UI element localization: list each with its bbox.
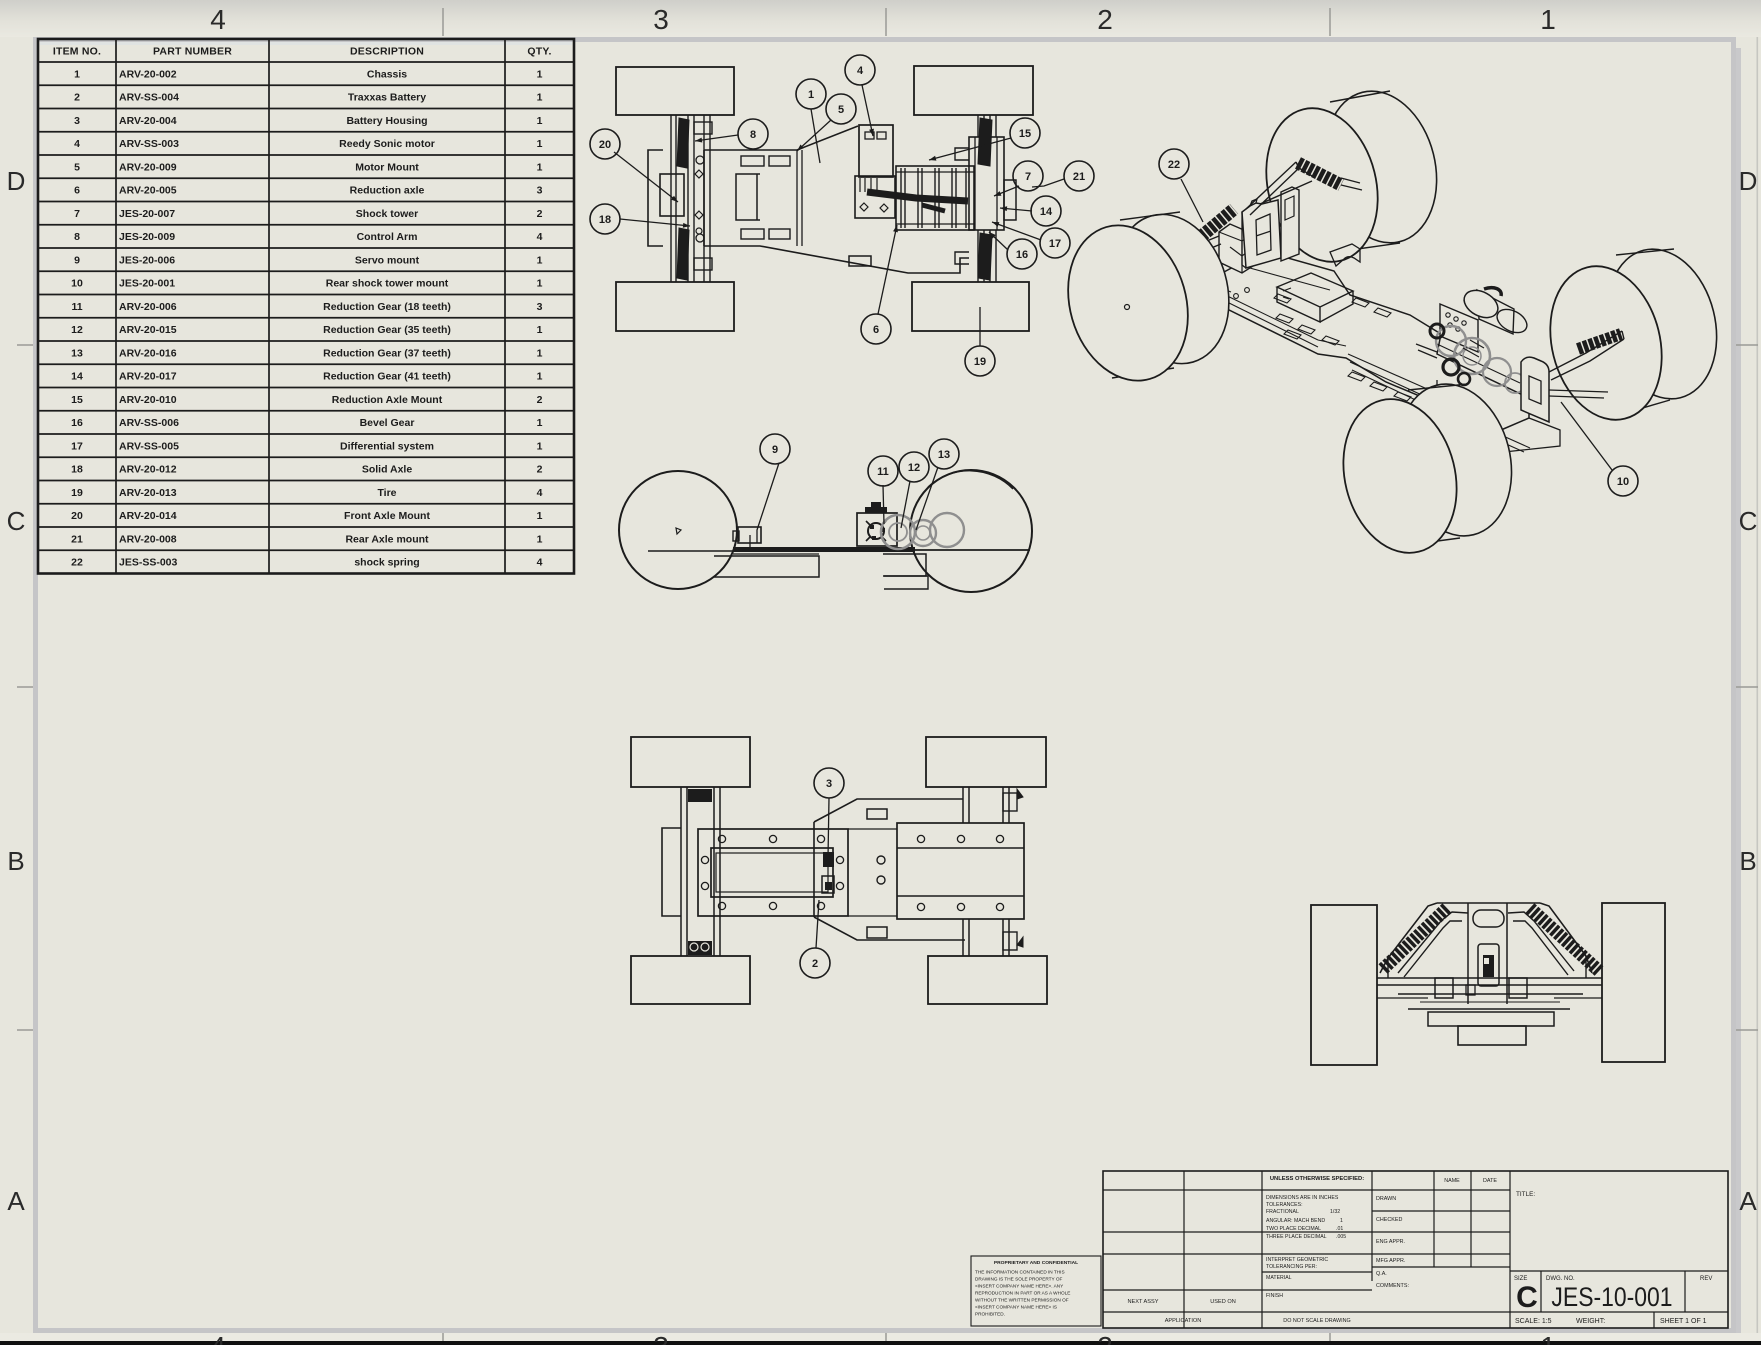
svg-text:3: 3 xyxy=(653,4,669,35)
svg-text:5: 5 xyxy=(74,161,80,173)
svg-text:CHECKED: CHECKED xyxy=(1376,1217,1402,1223)
svg-text:2: 2 xyxy=(1097,1331,1113,1345)
svg-text:DATE: DATE xyxy=(1483,1178,1497,1184)
svg-text:SCALE: 1:5: SCALE: 1:5 xyxy=(1515,1318,1552,1325)
svg-text:ARV-20-005: ARV-20-005 xyxy=(119,185,177,197)
svg-text:THREE PLACE DECIMAL: THREE PLACE DECIMAL xyxy=(1266,1234,1327,1240)
svg-text:ARV-SS-005: ARV-SS-005 xyxy=(119,440,179,452)
svg-text:1: 1 xyxy=(537,254,543,266)
svg-text:1: 1 xyxy=(808,89,814,101)
svg-text:9: 9 xyxy=(772,444,778,456)
svg-text:Chassis: Chassis xyxy=(367,68,407,80)
svg-text:ARV-20-008: ARV-20-008 xyxy=(119,533,177,545)
svg-text:B: B xyxy=(1739,846,1756,876)
svg-text:12: 12 xyxy=(71,324,83,336)
svg-text:Reduction Gear (41 teeth): Reduction Gear (41 teeth) xyxy=(323,371,451,383)
svg-text:19: 19 xyxy=(71,487,83,499)
svg-text:TOLERANCES:: TOLERANCES: xyxy=(1266,1202,1303,1208)
svg-text:PART NUMBER: PART NUMBER xyxy=(153,45,232,57)
svg-text:1: 1 xyxy=(537,347,543,359)
svg-text:5: 5 xyxy=(838,104,844,116)
svg-text:DIMENSIONS ARE IN INCHES: DIMENSIONS ARE IN INCHES xyxy=(1266,1195,1339,1201)
svg-text:3: 3 xyxy=(74,115,80,127)
svg-text:TITLE:: TITLE: xyxy=(1516,1191,1535,1198)
svg-text:A: A xyxy=(1739,1186,1757,1216)
svg-text:REV: REV xyxy=(1700,1276,1712,1282)
svg-text:APPLICATION: APPLICATION xyxy=(1165,1318,1202,1324)
svg-text:11: 11 xyxy=(71,301,82,313)
svg-text:SHEET 1 OF 1: SHEET 1 OF 1 xyxy=(1660,1318,1707,1325)
svg-text:6: 6 xyxy=(74,185,80,197)
svg-text:1: 1 xyxy=(537,417,543,429)
svg-text:7: 7 xyxy=(1025,171,1031,183)
svg-text:4: 4 xyxy=(537,231,543,243)
svg-text:1: 1 xyxy=(537,324,543,336)
svg-text:ARV-20-004: ARV-20-004 xyxy=(119,115,177,127)
svg-text:WEIGHT:: WEIGHT: xyxy=(1576,1318,1605,1325)
svg-text:Servo mount: Servo mount xyxy=(355,254,420,266)
svg-text:4: 4 xyxy=(210,1331,226,1345)
svg-text:1: 1 xyxy=(537,533,543,545)
svg-text:1: 1 xyxy=(537,68,543,80)
svg-text:C: C xyxy=(7,506,26,536)
svg-text:2: 2 xyxy=(812,958,818,970)
svg-text:.01: .01 xyxy=(1336,1226,1343,1232)
svg-text:ARV-SS-004: ARV-SS-004 xyxy=(119,92,179,104)
svg-text:NAME: NAME xyxy=(1444,1178,1460,1184)
svg-text:4: 4 xyxy=(210,4,226,35)
svg-text:Battery Housing: Battery Housing xyxy=(346,115,427,127)
svg-text:JES-10-001: JES-10-001 xyxy=(1551,1282,1672,1312)
svg-text:DRAWING IS THE SOLE PROPERTY O: DRAWING IS THE SOLE PROPERTY OF xyxy=(975,1277,1062,1282)
svg-text:ENG APPR.: ENG APPR. xyxy=(1376,1239,1405,1245)
svg-text:2: 2 xyxy=(1097,4,1113,35)
svg-text:13: 13 xyxy=(938,449,950,461)
svg-text:Bevel Gear: Bevel Gear xyxy=(360,417,415,429)
svg-text:17: 17 xyxy=(1049,238,1061,250)
svg-text:ARV-20-013: ARV-20-013 xyxy=(119,487,177,499)
svg-text:4: 4 xyxy=(537,557,543,569)
svg-text:Reduction Axle Mount: Reduction Axle Mount xyxy=(332,394,443,406)
svg-text:10: 10 xyxy=(1617,476,1629,488)
svg-text:ARV-20-012: ARV-20-012 xyxy=(119,464,177,476)
svg-text:DO NOT SCALE DRAWING: DO NOT SCALE DRAWING xyxy=(1283,1318,1350,1324)
svg-text:22: 22 xyxy=(1168,159,1180,171)
svg-text:<INSERT COMPANY NAME HERE>. A: <INSERT COMPANY NAME HERE>. ANY xyxy=(975,1284,1064,1289)
svg-text:Reduction Gear (37 teeth): Reduction Gear (37 teeth) xyxy=(323,347,451,359)
svg-text:1: 1 xyxy=(1540,1331,1556,1345)
svg-text:Rear shock tower mount: Rear shock tower mount xyxy=(326,278,449,290)
svg-text:Reduction Gear (18 teeth): Reduction Gear (18 teeth) xyxy=(323,301,451,313)
svg-text:Traxxas Battery: Traxxas Battery xyxy=(348,92,426,104)
svg-text:2: 2 xyxy=(537,208,543,220)
svg-text:6: 6 xyxy=(873,324,879,336)
svg-text:JES-20-006: JES-20-006 xyxy=(119,254,175,266)
svg-text:Tire: Tire xyxy=(377,487,396,499)
svg-text:21: 21 xyxy=(71,533,83,545)
svg-text:ITEM NO.: ITEM NO. xyxy=(53,45,101,57)
svg-text:19: 19 xyxy=(974,356,986,368)
svg-text:ARV-20-009: ARV-20-009 xyxy=(119,161,177,173)
svg-text:shock spring: shock spring xyxy=(354,557,419,569)
svg-text:NEXT ASSY: NEXT ASSY xyxy=(1128,1299,1159,1305)
svg-text:Q.A.: Q.A. xyxy=(1376,1271,1387,1277)
svg-text:FRACTIONAL: FRACTIONAL xyxy=(1266,1209,1299,1215)
svg-text:UNLESS OTHERWISE SPECIFIED:: UNLESS OTHERWISE SPECIFIED: xyxy=(1270,1176,1364,1182)
svg-text:8: 8 xyxy=(750,129,756,141)
svg-text:FINISH: FINISH xyxy=(1266,1293,1283,1299)
svg-text:INTERPRET GEOMETRIC: INTERPRET GEOMETRIC xyxy=(1266,1257,1328,1263)
svg-text:ANGULAR: MACH BEND: ANGULAR: MACH BEND xyxy=(1266,1218,1325,1224)
svg-text:3: 3 xyxy=(653,1331,669,1345)
svg-text:MFG APPR.: MFG APPR. xyxy=(1376,1258,1405,1264)
svg-text:ARV-20-015: ARV-20-015 xyxy=(119,324,177,336)
svg-text:Differential system: Differential system xyxy=(340,440,434,452)
svg-text:Motor Mount: Motor Mount xyxy=(355,161,419,173)
svg-text:PROPRIETARY AND CONFIDENTIAL: PROPRIETARY AND CONFIDENTIAL xyxy=(994,1260,1078,1266)
svg-text:ARV-20-014: ARV-20-014 xyxy=(119,510,177,522)
svg-text:15: 15 xyxy=(71,394,83,406)
svg-text:DESCRIPTION: DESCRIPTION xyxy=(350,45,424,57)
svg-text:ARV-SS-003: ARV-SS-003 xyxy=(119,138,179,150)
svg-text:1: 1 xyxy=(74,68,80,80)
svg-text:15: 15 xyxy=(1019,128,1031,140)
svg-text:17: 17 xyxy=(71,440,83,452)
svg-text:1: 1 xyxy=(537,510,543,522)
svg-text:1: 1 xyxy=(537,138,543,150)
svg-text:1: 1 xyxy=(537,161,543,173)
svg-text:Rear Axle mount: Rear Axle mount xyxy=(345,533,429,545)
svg-text:13: 13 xyxy=(71,347,83,359)
svg-text:ARV-20-006: ARV-20-006 xyxy=(119,301,177,313)
svg-text:JES-20-007: JES-20-007 xyxy=(119,208,175,220)
svg-text:18: 18 xyxy=(599,214,611,226)
svg-text:11: 11 xyxy=(877,466,889,478)
svg-text:ARV-SS-006: ARV-SS-006 xyxy=(119,417,179,429)
svg-text:Reduction axle: Reduction axle xyxy=(350,185,425,197)
svg-text:ARV-20-017: ARV-20-017 xyxy=(119,371,177,383)
svg-text:14: 14 xyxy=(1040,206,1053,218)
svg-text:TWO PLACE DECIMAL: TWO PLACE DECIMAL xyxy=(1266,1226,1321,1232)
svg-text:JES-20-009: JES-20-009 xyxy=(119,231,175,243)
svg-text:1/32: 1/32 xyxy=(1330,1209,1340,1215)
svg-text:1: 1 xyxy=(1540,4,1556,35)
svg-text:18: 18 xyxy=(71,464,83,476)
svg-text:1: 1 xyxy=(537,92,543,104)
svg-text:3: 3 xyxy=(537,185,543,197)
svg-text:14: 14 xyxy=(71,371,83,383)
svg-text:DRAWN: DRAWN xyxy=(1376,1196,1396,1202)
svg-text:PROHIBITED.: PROHIBITED. xyxy=(975,1312,1005,1317)
svg-text:USED ON: USED ON xyxy=(1210,1299,1236,1305)
svg-text:21: 21 xyxy=(1073,171,1085,183)
svg-text:2: 2 xyxy=(74,92,80,104)
svg-text:Shock tower: Shock tower xyxy=(356,208,418,220)
svg-text:2: 2 xyxy=(537,394,543,406)
svg-text:<INSERT COMPANY NAME HERE> IS: <INSERT COMPANY NAME HERE> IS xyxy=(975,1305,1057,1310)
svg-text:A: A xyxy=(7,1186,25,1216)
svg-text:16: 16 xyxy=(71,417,83,429)
svg-text:QTY.: QTY. xyxy=(527,45,551,57)
svg-text:ARV-20-010: ARV-20-010 xyxy=(119,394,177,406)
svg-text:7: 7 xyxy=(74,208,80,220)
svg-text:1: 1 xyxy=(537,115,543,127)
svg-text:ARV-20-016: ARV-20-016 xyxy=(119,347,177,359)
svg-text:4: 4 xyxy=(857,65,864,77)
svg-text:16: 16 xyxy=(1016,249,1028,261)
svg-text:Solid Axle: Solid Axle xyxy=(362,464,413,476)
svg-text:3: 3 xyxy=(826,778,832,790)
svg-text:4: 4 xyxy=(74,138,80,150)
svg-text:10: 10 xyxy=(71,278,83,290)
svg-text:4: 4 xyxy=(537,487,543,499)
svg-text:2: 2 xyxy=(537,464,543,476)
svg-text:TOLERANCING PER:: TOLERANCING PER: xyxy=(1266,1264,1317,1270)
svg-text:THE INFORMATION CONTAINED IN T: THE INFORMATION CONTAINED IN THIS xyxy=(975,1270,1065,1275)
svg-text:8: 8 xyxy=(74,231,80,243)
svg-text:12: 12 xyxy=(908,462,920,474)
svg-text:C: C xyxy=(1516,1281,1538,1314)
svg-text:Reduction Gear (35 teeth): Reduction Gear (35 teeth) xyxy=(323,324,451,336)
svg-text:DWG. NO.: DWG. NO. xyxy=(1546,1276,1575,1282)
svg-text:B: B xyxy=(7,846,24,876)
svg-text:Reedy Sonic motor: Reedy Sonic motor xyxy=(339,138,435,150)
svg-text:9: 9 xyxy=(74,254,80,266)
svg-text:COMMENTS:: COMMENTS: xyxy=(1376,1283,1409,1289)
svg-text:ARV-20-002: ARV-20-002 xyxy=(119,68,177,80)
svg-text:.005: .005 xyxy=(1336,1234,1346,1240)
svg-text:JES-SS-003: JES-SS-003 xyxy=(119,557,178,569)
svg-text:D: D xyxy=(7,166,26,196)
svg-text:Control Arm: Control Arm xyxy=(357,231,418,243)
svg-text:MATERIAL: MATERIAL xyxy=(1266,1275,1292,1281)
svg-text:1: 1 xyxy=(537,278,543,290)
svg-text:3: 3 xyxy=(537,301,543,313)
svg-text:1: 1 xyxy=(537,371,543,383)
svg-text:D: D xyxy=(1739,166,1758,196)
svg-text:REPRODUCTION IN PART OR AS A W: REPRODUCTION IN PART OR AS A WHOLE xyxy=(975,1291,1070,1296)
svg-text:C: C xyxy=(1739,506,1758,536)
svg-text:20: 20 xyxy=(71,510,83,522)
svg-text:WITHOUT THE WRITTEN PERMISSION: WITHOUT THE WRITTEN PERMISSION OF xyxy=(975,1298,1069,1303)
svg-text:Front Axle Mount: Front Axle Mount xyxy=(344,510,430,522)
svg-text:22: 22 xyxy=(71,557,83,569)
svg-text:1: 1 xyxy=(1340,1218,1343,1224)
svg-text:JES-20-001: JES-20-001 xyxy=(119,278,175,290)
svg-text:20: 20 xyxy=(599,139,611,151)
svg-text:1: 1 xyxy=(537,440,543,452)
